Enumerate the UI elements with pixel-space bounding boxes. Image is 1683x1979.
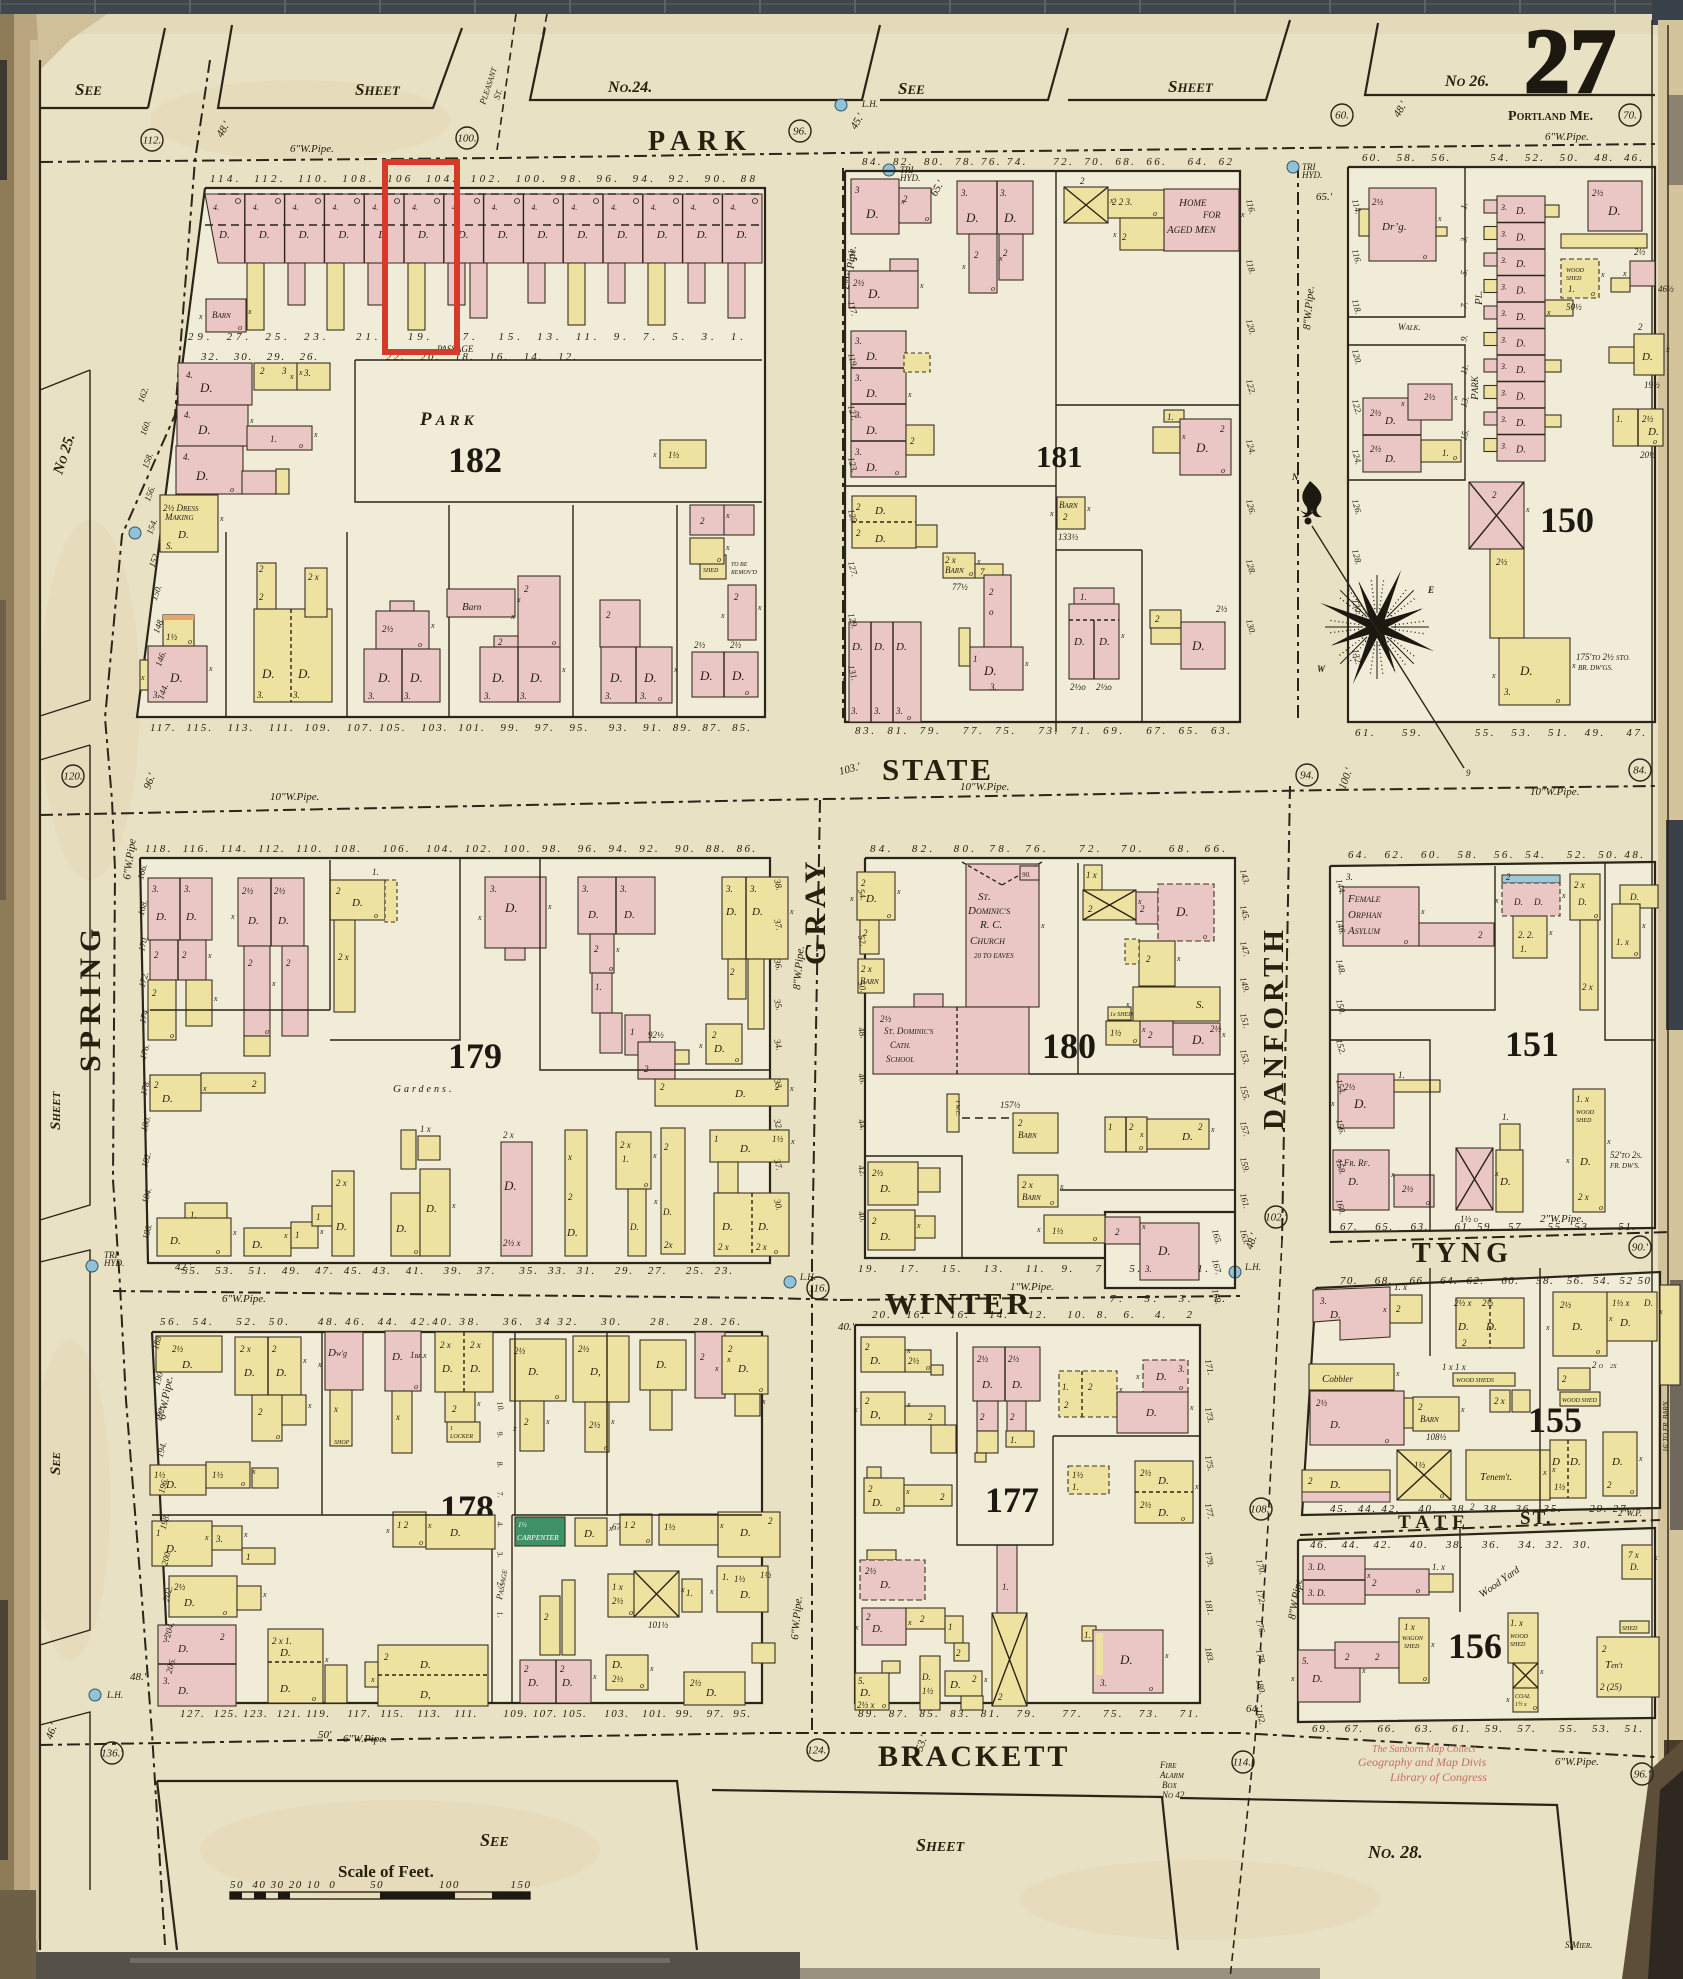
svg-text:x: x	[204, 1533, 209, 1542]
svg-text:D.: D.	[425, 1203, 437, 1215]
svg-text:x: x	[854, 1623, 859, 1632]
svg-text:x: x	[1571, 661, 1576, 670]
svg-text:92½: 92½	[648, 1030, 664, 1040]
svg-text:6″W.Pipe.: 6″W.Pipe.	[1545, 131, 1589, 143]
svg-text:1″W.Pipe.: 1″W.Pipe.	[1010, 1281, 1054, 1293]
svg-text:x: x	[673, 665, 678, 674]
svg-text:4.: 4.	[184, 410, 191, 420]
svg-text:46½: 46½	[1658, 284, 1674, 294]
svg-text:D.: D.	[1347, 1176, 1359, 1188]
svg-text:AGED MEN: AGED MEN	[1166, 224, 1217, 236]
svg-text:D.: D.	[895, 641, 907, 653]
svg-text:o: o	[170, 1031, 174, 1040]
svg-text:x: x	[1551, 1465, 1556, 1474]
svg-text:ORPHAN: ORPHAN	[1348, 909, 1382, 921]
svg-text:136.′: 136.′	[101, 1748, 123, 1760]
svg-text:x: x	[610, 1417, 615, 1426]
svg-text:D.: D.	[469, 1363, 481, 1375]
svg-text:WOOD: WOOD	[1566, 268, 1585, 274]
svg-text:o: o	[1594, 911, 1598, 920]
svg-text:D.: D.	[965, 210, 979, 225]
svg-text:2: 2	[712, 1030, 717, 1040]
svg-text:x: x	[725, 543, 730, 552]
svg-text:Library of Congress: Library of Congress	[1389, 1770, 1487, 1784]
svg-text:5.: 5.	[858, 1676, 865, 1686]
svg-text:3.: 3.	[292, 690, 300, 700]
svg-text:x: x	[1290, 1674, 1295, 1683]
svg-text:x: x	[1561, 891, 1566, 900]
svg-text:2½: 2½	[612, 1596, 624, 1606]
svg-text:2: 2	[768, 1516, 773, 1526]
svg-text:2: 2	[1345, 1652, 1350, 1662]
svg-text:D.: D.	[1329, 1309, 1341, 1321]
svg-text:2½o: 2½o	[1070, 682, 1086, 692]
svg-text:x: x	[1491, 671, 1496, 680]
svg-text:D.: D.	[261, 666, 275, 681]
svg-text:3.: 3.	[1144, 1264, 1152, 1274]
svg-text:D.: D.	[449, 1527, 461, 1539]
svg-text:1 2: 1 2	[624, 1520, 636, 1530]
svg-text:D.: D.	[441, 1363, 453, 1375]
svg-text:x: x	[302, 1356, 307, 1365]
svg-text:2½: 2½	[514, 1346, 526, 1356]
svg-text:D.: D.	[1175, 904, 1189, 919]
svg-text:D.: D.	[873, 641, 885, 653]
svg-text:x: x	[1653, 1553, 1658, 1562]
svg-text:o: o	[414, 1382, 418, 1391]
svg-text:D.: D.	[1519, 663, 1533, 678]
svg-text:x: x	[1420, 907, 1425, 916]
svg-text:65.′: 65.′	[1316, 191, 1333, 203]
svg-text:x: x	[1606, 1137, 1611, 1146]
svg-text:x: x	[1608, 1314, 1613, 1323]
svg-text:1½ x: 1½ x	[1515, 1701, 1527, 1708]
svg-text:2 x: 2 x	[503, 1130, 514, 1140]
svg-text:x: x	[1164, 1651, 1169, 1660]
svg-text:2 x: 2 x	[308, 572, 319, 582]
svg-text:2: 2	[861, 878, 866, 888]
svg-text:2: 2	[974, 250, 979, 260]
svg-text:x: x	[1176, 954, 1181, 963]
svg-text:2 (25): 2 (25)	[1600, 1682, 1622, 1692]
svg-text:4.: 4.	[571, 203, 577, 212]
svg-text:x: x	[726, 1355, 731, 1364]
svg-text:1 x: 1 x	[1086, 870, 1097, 880]
svg-text:SHED: SHED	[1510, 1642, 1526, 1648]
svg-text:x: x	[1049, 509, 1054, 518]
svg-text:3.: 3.	[999, 188, 1007, 198]
svg-text:3.: 3.	[1099, 1678, 1107, 1688]
svg-text:2: 2	[660, 1082, 665, 1092]
svg-text:x: x	[1194, 1482, 1199, 1491]
svg-text:x: x	[1361, 1666, 1366, 1675]
svg-text:ST. DOMINIC'S: ST. DOMINIC'S	[884, 1026, 934, 1036]
svg-text:102.′: 102.′	[1265, 1212, 1287, 1224]
svg-text:1.: 1.	[1084, 1630, 1091, 1640]
svg-text:60.: 60.	[1335, 110, 1349, 122]
svg-text:2½: 2½	[1210, 1024, 1222, 1034]
svg-text:2: 2	[1018, 1118, 1023, 1128]
svg-text:2: 2	[260, 366, 265, 376]
svg-text:2: 2	[258, 1407, 263, 1417]
svg-text:TYNG: TYNG	[1412, 1238, 1513, 1269]
svg-text:2½: 2½	[242, 886, 254, 896]
svg-text:D.: D.	[1643, 1298, 1653, 1308]
svg-text:x: x	[451, 1201, 456, 1210]
svg-text:2½: 2½	[382, 624, 394, 634]
svg-text:o: o	[882, 1701, 886, 1710]
svg-text:SEE: SEE	[48, 1452, 64, 1475]
svg-text:o: o	[1596, 1347, 1600, 1356]
svg-text:D.: D.	[277, 915, 289, 927]
svg-text:2: 2	[980, 1412, 985, 1422]
svg-text:D.: D.	[169, 670, 183, 685]
svg-text:2: 2	[940, 1492, 945, 1502]
svg-text:D.: D.	[177, 1643, 189, 1655]
svg-text:x: x	[1112, 230, 1117, 239]
svg-text:2 x: 2 x	[1574, 880, 1585, 890]
svg-text:1½: 1½	[1554, 1482, 1566, 1492]
svg-text:20½: 20½	[1640, 450, 1656, 460]
svg-text:2: 2	[544, 1612, 549, 1622]
svg-text:D.: D.	[1641, 351, 1653, 363]
svg-text:2: 2	[560, 1664, 565, 1674]
svg-text:156: 156	[1448, 1626, 1502, 1666]
svg-text:D.: D.	[1515, 445, 1526, 456]
svg-text:D.: D.	[1513, 897, 1523, 907]
svg-text:o: o	[414, 1247, 418, 1256]
svg-text:BARN: BARN	[1420, 1414, 1439, 1424]
svg-text:D.: D.	[395, 1223, 407, 1235]
svg-text:D.: D.	[739, 1589, 751, 1601]
svg-text:D.: D.	[871, 1623, 883, 1635]
svg-text:x: x	[247, 307, 252, 316]
svg-text:SHED: SHED	[703, 568, 719, 574]
svg-text:o: o	[1050, 1198, 1054, 1207]
svg-text:D.: D.	[1157, 1475, 1169, 1487]
svg-text:179: 179	[448, 1036, 502, 1076]
svg-text:D.: D.	[409, 670, 423, 685]
svg-text:x: x	[1545, 1323, 1550, 1332]
svg-text:D.: D.	[874, 533, 886, 545]
svg-text:x: x	[477, 913, 482, 922]
svg-text:x: x	[761, 1397, 766, 1406]
svg-text:x: x	[516, 595, 521, 604]
svg-text:BARN: BARN	[1018, 1130, 1037, 1140]
svg-text:o: o	[1453, 453, 1457, 462]
svg-text:x: x	[476, 1399, 481, 1408]
svg-text:D.: D.	[1384, 415, 1396, 427]
svg-text:3.: 3.	[960, 188, 968, 198]
svg-text:x: x	[1641, 921, 1646, 930]
svg-text:180: 180	[1042, 1026, 1096, 1066]
svg-text:Barn: Barn	[462, 601, 482, 613]
svg-text:x: x	[1539, 1667, 1544, 1676]
svg-text:x: x	[567, 1152, 572, 1162]
svg-text:2½: 2½	[730, 640, 742, 650]
svg-text:o: o	[969, 569, 973, 578]
svg-text:2: 2	[1220, 424, 1225, 434]
svg-text:1.: 1.	[1442, 448, 1449, 458]
svg-text:D.: D.	[504, 900, 518, 915]
svg-text:D.: D.	[705, 1687, 717, 1699]
svg-text:x: x	[652, 1151, 657, 1160]
svg-text:1½: 1½	[1414, 1460, 1426, 1470]
svg-text:2: 2	[1088, 904, 1093, 914]
svg-text:NO.24.: NO.24.	[607, 79, 652, 96]
svg-text:2 x: 2 x	[336, 1178, 347, 1188]
svg-text:SHED: SHED	[1566, 276, 1582, 282]
svg-text:4.: 4.	[492, 203, 498, 212]
svg-text:x: x	[906, 1400, 911, 1409]
svg-text:x: x	[998, 254, 1003, 263]
svg-text:D.: D.	[643, 670, 657, 685]
svg-text:x: x	[298, 368, 303, 377]
svg-text:x: x	[202, 1084, 207, 1093]
svg-text:D.: D.	[1353, 1096, 1367, 1111]
svg-text:W: W	[1317, 664, 1326, 674]
svg-text:CATH.: CATH.	[890, 1040, 911, 1050]
svg-text:x: x	[1125, 1000, 1130, 1009]
svg-text:o: o	[735, 1055, 739, 1064]
svg-text:2: 2	[1607, 1480, 1612, 1490]
svg-text:D.: D.	[662, 1207, 672, 1217]
svg-text:o: o	[1133, 1036, 1137, 1045]
svg-text:3.: 3.	[183, 884, 191, 894]
svg-text:3.: 3.	[989, 682, 997, 692]
svg-text:x: x	[720, 611, 725, 620]
svg-text:D.: D.	[1098, 636, 1110, 648]
svg-text:D.: D.	[739, 1143, 751, 1155]
svg-text:1.: 1.	[1062, 1382, 1069, 1392]
svg-text:o: o	[1423, 1674, 1427, 1683]
svg-text:REMOV'D: REMOV'D	[730, 570, 758, 576]
svg-text:2½: 2½	[174, 1582, 186, 1592]
svg-text:x: x	[430, 621, 435, 630]
svg-text:3. D.: 3. D.	[1307, 1562, 1326, 1572]
svg-text:2½: 2½	[880, 1014, 892, 1024]
svg-text:S.MIER.: S.MIER.	[1565, 1940, 1592, 1950]
svg-text:3.: 3.	[895, 706, 903, 716]
svg-text:2: 2	[498, 637, 503, 647]
svg-text:D.: D.	[177, 529, 189, 541]
svg-text:x: x	[976, 557, 981, 566]
svg-text:Ten't: Ten't	[1605, 1659, 1623, 1671]
svg-text:1.: 1.	[1502, 1112, 1509, 1122]
svg-text:1. x: 1. x	[1394, 1282, 1407, 1292]
svg-text:3.: 3.	[604, 691, 612, 701]
svg-text:x: x	[1210, 1125, 1215, 1134]
svg-text:1: 1	[973, 654, 978, 664]
svg-text:3.: 3.	[619, 884, 627, 894]
svg-text:2: 2	[998, 1692, 1003, 1702]
svg-text:108.′: 108.′	[1250, 1504, 1272, 1516]
svg-text:x: x	[615, 945, 620, 954]
svg-text:D.: D.	[757, 1221, 769, 1233]
svg-text:D.: D.	[527, 1366, 539, 1378]
svg-text:10″W.Pipe.: 10″W.Pipe.	[1530, 786, 1579, 798]
svg-text:x: x	[230, 912, 235, 921]
svg-text:1.: 1.	[1072, 1482, 1079, 1492]
svg-text:D.: D.	[391, 1351, 403, 1363]
svg-text:x: x	[140, 673, 145, 682]
svg-text:D.: D.	[851, 641, 863, 653]
svg-text:10.: 10.	[495, 1401, 506, 1412]
svg-text:2: 2	[1492, 490, 1497, 500]
svg-text:D.: D.	[629, 1222, 639, 1232]
svg-text:2: 2	[220, 1632, 225, 1642]
svg-text:3.: 3.	[1500, 362, 1507, 371]
svg-text:D.: D.	[699, 668, 713, 683]
svg-text:x: x	[789, 1084, 794, 1093]
svg-text:BARN: BARN	[945, 565, 964, 575]
svg-text:1: 1	[246, 1552, 251, 1562]
svg-text:x: x	[219, 514, 224, 523]
svg-text:x: x	[1086, 504, 1091, 513]
svg-text:2½: 2½	[1216, 604, 1228, 614]
svg-text:x: x	[680, 1585, 685, 1594]
svg-text:WAGON: WAGON	[1402, 1636, 1424, 1642]
svg-text:D.: D.	[181, 1359, 193, 1371]
svg-text:SEE: SEE	[75, 80, 102, 99]
svg-text:o: o	[644, 1180, 648, 1189]
svg-text:o: o	[552, 638, 556, 647]
svg-text:2: 2	[865, 1342, 870, 1352]
svg-text:2: 2	[1088, 1382, 1093, 1392]
svg-text:2½: 2½	[589, 1420, 601, 1430]
svg-text:D.: D.	[529, 670, 543, 685]
svg-text:3.: 3.	[151, 884, 159, 894]
svg-text:2½: 2½	[1424, 392, 1436, 402]
svg-text:SHEET: SHEET	[355, 80, 401, 99]
svg-text:4.: 4.	[293, 203, 299, 212]
svg-text:x: x	[232, 1228, 237, 1237]
svg-text:BRACKETT: BRACKETT	[878, 1740, 1070, 1773]
svg-text:o: o	[759, 1385, 763, 1394]
svg-text:50′: 50′	[318, 1729, 332, 1741]
svg-text:1.: 1.	[1568, 284, 1575, 294]
svg-text:2: 2	[872, 1216, 877, 1226]
svg-text:1 W.C.: 1 W.C.	[954, 1100, 960, 1116]
svg-text:120.: 120.	[63, 771, 82, 783]
svg-text:FEMALE: FEMALE	[1347, 893, 1381, 905]
svg-text:3.: 3.	[1500, 442, 1507, 451]
svg-text:2½: 2½	[1372, 197, 1384, 207]
svg-text:R. C.: R. C.	[979, 919, 1002, 931]
svg-text:D.: D.	[865, 460, 878, 474]
svg-text:48.′: 48.′	[130, 1671, 147, 1683]
svg-text:FR. DW'S.: FR. DW'S.	[1609, 1162, 1640, 1170]
svg-text:o: o	[609, 964, 613, 973]
svg-text:2½ x: 2½ x	[857, 1700, 875, 1710]
svg-text:D,: D,	[589, 1366, 601, 1378]
svg-text:3.: 3.	[854, 336, 862, 346]
svg-text:D.: D.	[561, 1677, 573, 1689]
svg-text:D.: D.	[419, 1659, 431, 1671]
svg-text:D.: D.	[177, 1685, 189, 1697]
svg-text:SHEET: SHEET	[48, 1090, 64, 1130]
svg-text:o: o	[223, 1608, 227, 1617]
svg-text:1: 1	[948, 1622, 953, 1632]
svg-text:D.: D.	[1195, 440, 1209, 455]
svg-text:2 x: 2 x	[440, 1340, 451, 1350]
svg-text:2: 2	[1080, 176, 1085, 186]
svg-text:x: x	[1109, 196, 1114, 205]
svg-text:The Sanborn Map Collect: The Sanborn Map Collect	[1372, 1744, 1476, 1755]
svg-text:x: x	[719, 1521, 724, 1530]
svg-text:D.: D.	[1607, 203, 1621, 218]
svg-text:4.: 4.	[531, 203, 537, 212]
svg-text:o: o	[658, 694, 662, 703]
svg-text:2 x: 2 x	[1494, 1396, 1505, 1406]
svg-text:70.: 70.	[1623, 110, 1637, 122]
svg-text:x: x	[1382, 1305, 1387, 1314]
svg-text:2: 2	[1562, 1374, 1567, 1384]
svg-text:1½: 1½	[1110, 1028, 1122, 1038]
svg-text:o: o	[1139, 1143, 1143, 1152]
svg-text:D.: D.	[279, 1683, 291, 1695]
svg-text:3.: 3.	[303, 368, 311, 378]
svg-text:D.: D.	[497, 229, 509, 241]
svg-text:o: o	[629, 1608, 633, 1617]
svg-text:o: o	[1093, 1234, 1097, 1243]
svg-text:o: o	[604, 1443, 608, 1452]
svg-text:CHURCH: CHURCH	[970, 935, 1006, 947]
svg-text:x: x	[1494, 896, 1499, 905]
svg-text:D.: D.	[1157, 1243, 1171, 1258]
svg-text:HOME: HOME	[1178, 197, 1207, 209]
svg-text:2½: 2½	[1642, 414, 1654, 424]
svg-text:1.: 1.	[595, 982, 602, 992]
svg-text:1½: 1½	[1052, 1226, 1064, 1236]
svg-text:x: x	[1141, 1222, 1146, 1231]
svg-text:1.: 1.	[270, 434, 277, 444]
svg-text:x: x	[906, 1346, 911, 1355]
svg-text:o: o	[896, 1504, 900, 1513]
svg-text:D.: D.	[1329, 1479, 1341, 1491]
svg-text:L.H.: L.H.	[1244, 1262, 1261, 1272]
svg-text:1 2: 1 2	[397, 1520, 409, 1530]
svg-text:2 x: 2 x	[718, 1242, 729, 1252]
svg-text:D.: D.	[616, 229, 628, 241]
svg-text:D.: D.	[1191, 1032, 1205, 1047]
svg-text:D.: D.	[1619, 1317, 1631, 1329]
svg-text:x: x	[1505, 1695, 1510, 1704]
svg-text:150: 150	[1540, 500, 1594, 540]
svg-text:D.: D.	[275, 1367, 287, 1379]
svg-text:2½: 2½	[694, 640, 706, 650]
svg-text:124.′: 124.′	[807, 1745, 829, 1757]
svg-text:x: x	[1665, 345, 1670, 354]
svg-text:D.: D.	[218, 229, 230, 241]
svg-text:1.: 1.	[686, 1588, 693, 1598]
svg-text:SEE: SEE	[898, 79, 925, 98]
svg-text:2: 2	[1506, 872, 1511, 882]
svg-text:3.: 3.	[850, 706, 858, 716]
svg-text:3.: 3.	[1500, 256, 1507, 265]
svg-text:1: 1	[630, 1027, 635, 1037]
svg-text:2: 2	[182, 950, 187, 960]
svg-text:o: o	[238, 323, 242, 332]
svg-text:69. 67. 66. 63. 61.: 69. 67. 66. 63. 61. 59. 57. 55. 53. 51.	[1312, 1723, 1642, 1735]
svg-text:100.: 100.	[457, 133, 476, 145]
svg-text:2 x: 2 x	[1022, 1180, 1033, 1190]
svg-text:ALARM: ALARM	[1159, 1770, 1185, 1780]
svg-text:2: 2	[384, 1652, 389, 1662]
svg-text:BARN: BARN	[1022, 1192, 1041, 1202]
svg-text:2½: 2½	[1634, 247, 1646, 257]
svg-text:2½: 2½	[274, 886, 286, 896]
